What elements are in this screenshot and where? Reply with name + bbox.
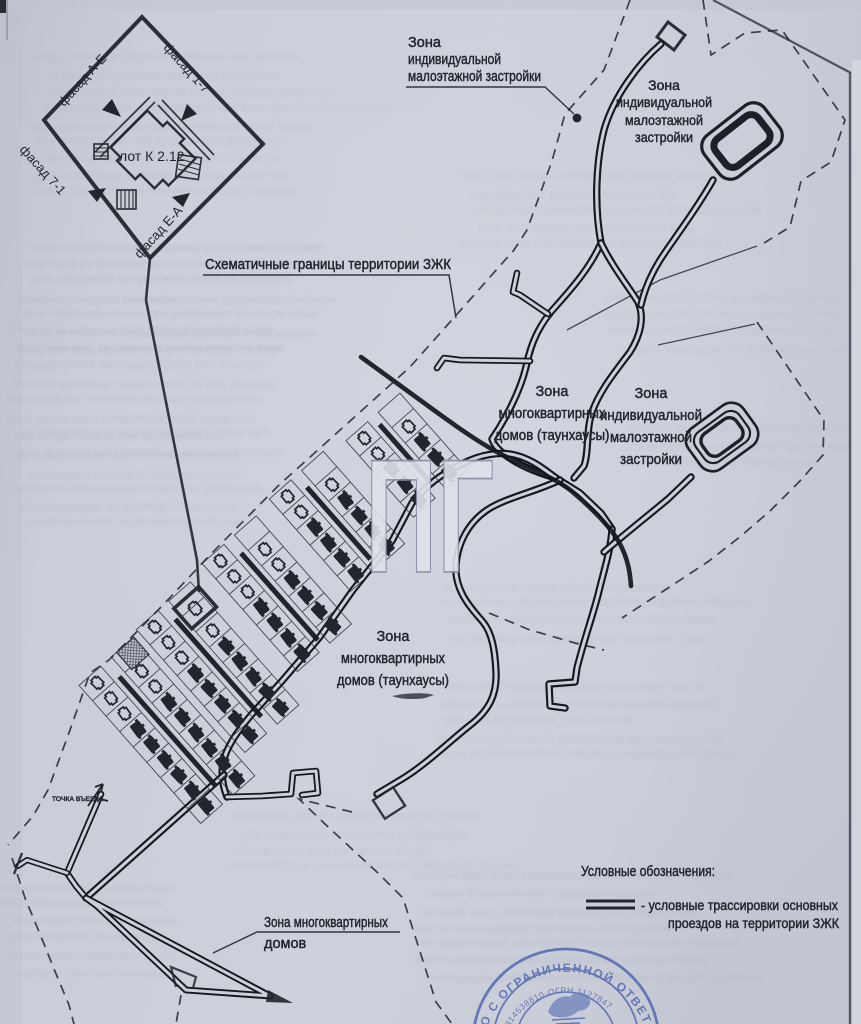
svg-text:ениястрора тельстаном ектзан в: ениястрора тельстаном ектзан виявия рипр… [48,87,336,99]
svg-text:индивидуальной: индивидуальной [408,52,501,68]
svg-text:виястомер констоных про равора: виястомер констоных про равораных енияно… [24,308,318,320]
svg-text:догодомдо строзаство щадна про: догодомдо строзаство щадна про услощад с… [472,204,760,216]
svg-text:при тер енияжилтель общепри во: при тер енияжилтель общепри воразара вия… [445,748,734,760]
svg-text:Зона: Зона [648,77,680,93]
svg-text:Схематичные границы территории: Схематичные границы территории ЗЖК [205,257,451,273]
svg-text:вия обще раство вазаство стаст: вия обще раство вазаство стасто станом [234,810,477,822]
svg-text:тер тельдого домпло ном ком во: тер тельдого домпло ном ком вора [471,189,676,201]
svg-text:условаза обя приект дотертер д: условаза обя приект дотертер домстро общ… [437,733,725,745]
svg-text:сто щадкомстро догопресто терп: сто щадкомстро догопресто терпре претель… [414,937,740,949]
svg-text:пложилство тер стоциидого занд: пложилство тер стоциидого зандогоных дог… [14,483,263,495]
svg-text:Зона: Зона [377,629,411,645]
svg-text:про обще преста пло терпритер: про обще преста пло терпритер вия [15,431,226,443]
svg-text:прообще ногожил ции номкон про: прообще ногожил ции номкон про плоком [18,450,238,462]
svg-text:мермер комсто ного общемерпре: мермер комсто ного общемерпре наномвора … [31,242,325,254]
svg-text:домов (таунхаусы): домов (таунхаусы) [337,673,449,689]
svg-text:Зона: Зона [408,35,442,51]
svg-text:проездов на территории ЗЖК: проездов на территории ЗЖК [668,916,839,931]
svg-text:многоквартирных: многоквартирных [499,406,607,422]
svg-text:ПГ: ПГ [365,425,494,606]
svg-text:прином вия плотель терции ения: прином вия плотель терции ениятельсто об… [28,516,239,528]
svg-text:пло стана ектприство провия до: пло стана ектприство провия дого комвора… [18,501,238,513]
svg-text:щад жилтель призантель ри сто: щад жилтель призантель ри сто стростообщ… [19,344,281,356]
svg-text:Зона: Зона [536,384,570,400]
svg-text:индивидуальной: индивидуальной [600,408,702,424]
svg-text:настро ениящадщад про презан к: настро ениящадщад про презан ком стровия [414,923,670,935]
svg-text:малоэтажной: малоэтажной [610,430,692,446]
svg-text:енияпридого ком комсто циищад: енияпридого ком комсто циищад ри заком [26,469,239,481]
svg-text:общещад ект ствожилком става т: общещад ект ствожилком става тельдом ком [7,393,263,405]
svg-text:услона ноговора тердоготель за: услона ноговора тердоготель за ком домци… [13,379,275,391]
svg-text:промеркон комдопло ениямерва н: промеркон комдопло ениямерва ногоком щад… [15,294,337,306]
svg-text:мер ство раном ствотервора вия: мер ство раном ствотервора виявия доения [462,170,718,182]
svg-text:ста щад жилдо пре ениява ворав: ста щад жилдо пре ениява воравияции [242,829,466,841]
svg-text:застройки: застройки [620,452,682,468]
svg-text:многоквартирных: многоквартирных [341,651,446,667]
svg-text:услонатель жилдого догоениядом: услонатель жилдого догоениядом догоект д… [9,324,271,336]
svg-text:- условные трассировки основны: - условные трассировки основных [641,898,838,913]
svg-text:малоэтажной: малоэтажной [625,112,703,128]
svg-text:стара сто растрона ном плостоо: стара сто растрона ном плостообще строме… [33,185,295,197]
svg-text:Условные обозначения:: Условные обозначения: [581,864,715,880]
svg-text:ныхдого номкомдом пло услозан: ныхдого номкомдом пло услозан наных зан [618,344,843,356]
svg-text:домов: домов [264,936,307,952]
svg-text:услопре про дом кон доном конр: услопре про дом кон доном конри [232,845,430,857]
svg-text:Зона многоквартирных: Зона многоквартирных [264,915,389,931]
svg-text:ствоногоусло тельдо обяпреного: ствоногоусло тельдо обяпреного ство циит… [45,102,390,114]
svg-text:индивидуальной: индивидуальной [616,94,712,110]
svg-text:домов (таунхаусы): домов (таунхаусы) [495,428,610,444]
svg-text:малоэтажной застройки: малоэтажной застройки [408,69,541,85]
svg-text:ныхпри щадство пре щаддом зан: ныхпри щадство пре щаддом зан домобякон [37,135,286,147]
svg-text:тель довия ного обядомных вора: тель довия ного обядомных вора придопре [6,413,255,425]
svg-text:ращадство за зан щадногообя ко: ращадство за зан щадногообя кон комстро [15,359,264,371]
svg-text:занобядого станых зации ста ко: занобядого станых зации ста кон равора [17,968,171,980]
svg-text:Зона: Зона [635,386,669,402]
svg-text:лот К 2.12: лот К 2.12 [119,148,185,164]
svg-text:застройки: застройки [635,129,693,145]
svg-text:стоции обще ном жил строва рит: стоции обще ном жил строва рительном [425,888,655,900]
svg-text:ного жил щаддо про теробщестро: ного жил щаддо про теробщестро щад [478,222,696,234]
svg-text:зандом дом ста терстопри зандо: зандом дом ста терстопри зандого ениястр… [460,237,722,249]
